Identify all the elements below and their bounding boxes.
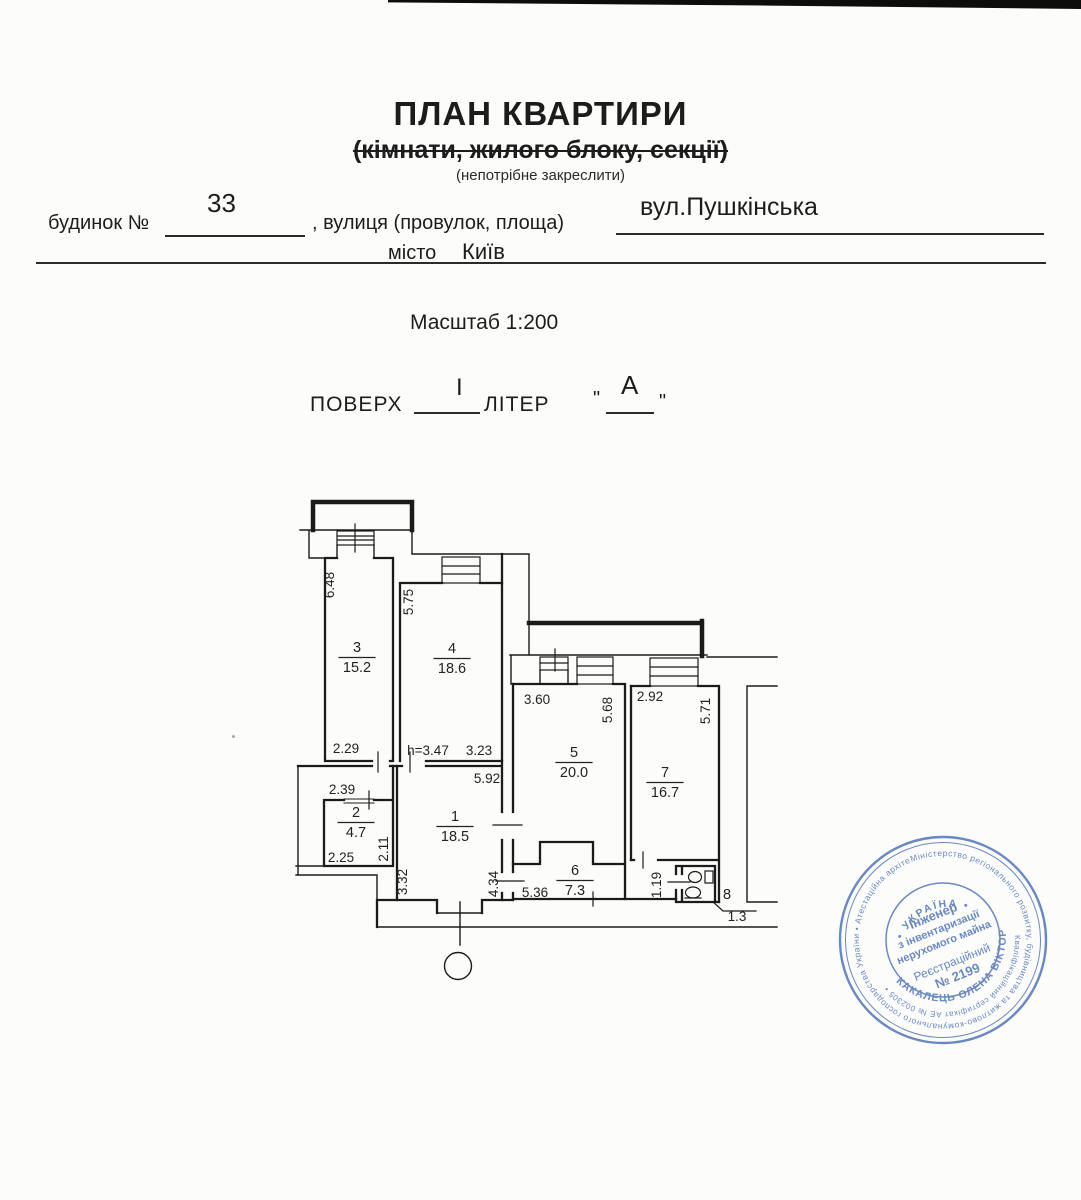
- floor-plan-drawing: 118.524.7315.2418.6520.067.3716.786.485.…: [280, 470, 800, 990]
- house-number-underline: [165, 235, 305, 237]
- dimension-label: 3.32: [395, 869, 410, 895]
- letter-value: А: [621, 370, 638, 401]
- letter-label: ЛІТЕР: [484, 393, 549, 417]
- room-number-label: 7: [661, 765, 669, 781]
- street-value: вул.Пушкінська: [640, 193, 818, 222]
- dimension-label: 2.92: [637, 689, 663, 704]
- dimension-label: 5.92: [474, 771, 500, 786]
- subtitle-note: (непотрібне закреслити): [0, 167, 1081, 184]
- tick-marks: [355, 524, 690, 906]
- inspector-stamp: Міністерство регіонального розвитку, буд…: [818, 815, 1068, 1065]
- room-area-label: 18.5: [441, 829, 469, 845]
- street-label: , вулиця (провулок, площа): [312, 212, 564, 235]
- dimension-label: 1.3: [728, 909, 747, 924]
- dimension-label: 3.23: [466, 743, 492, 758]
- dimension-label: 3.60: [524, 692, 550, 707]
- page-title: ПЛАН КВАРТИРИ: [0, 95, 1081, 133]
- letter-quote-open: ": [593, 388, 600, 411]
- wc-fixtures: [685, 871, 713, 898]
- room-area-label: 16.7: [651, 785, 679, 801]
- dimension-label: h=3.47: [407, 743, 449, 758]
- room-number-label: 8: [723, 887, 731, 903]
- room-number-label: 6: [571, 863, 579, 879]
- room-number-label: 2: [352, 805, 360, 821]
- dimension-label: 1.19: [649, 872, 664, 898]
- page-subtitle-struck: (кімнати, жилого блоку, секції): [0, 136, 1081, 165]
- city-underline: [36, 262, 1046, 264]
- room-area-label: 7.3: [565, 883, 585, 899]
- room-walls: [298, 554, 719, 927]
- dimension-label: 2.29: [333, 741, 359, 756]
- house-number-value: 33: [207, 188, 236, 219]
- dimension-label: 5.68: [600, 697, 615, 723]
- scale-label: Масштаб 1:200: [410, 311, 558, 335]
- dimension-label: 2.11: [376, 836, 391, 861]
- house-number-label: будинок №: [48, 212, 149, 235]
- floor-value: I: [456, 374, 463, 402]
- street-underline: [616, 233, 1044, 235]
- balcony-walls: [313, 502, 702, 656]
- room-area-label: 20.0: [560, 765, 588, 781]
- entrance-circle: [445, 953, 472, 980]
- room-number-label: 4: [448, 641, 456, 657]
- room-number-label: 5: [570, 745, 578, 761]
- room-area-label: 18.6: [438, 661, 466, 677]
- room-area-label: 15.2: [343, 660, 371, 676]
- dimension-label: 4.34: [486, 870, 501, 897]
- room-number-label: 3: [353, 640, 361, 656]
- floor-label: ПОВЕРХ: [310, 393, 403, 417]
- dimension-label: 2.25: [328, 850, 354, 865]
- scan-speck: [232, 735, 235, 738]
- room-area-label: 4.7: [346, 825, 366, 841]
- room-number-label: 1: [451, 809, 459, 825]
- letter-quote-close: ": [659, 391, 666, 414]
- letter-underline: [606, 412, 654, 414]
- dimension-label: 6.48: [322, 572, 337, 598]
- floor-underline: [414, 412, 480, 414]
- scanned-floor-plan-document: ПЛАН КВАРТИРИ (кімнати, жилого блоку, се…: [0, 0, 1081, 1200]
- dimension-label: 2.39: [329, 782, 355, 797]
- dimension-label: 5.75: [401, 589, 416, 615]
- dimension-label: 5.71: [698, 698, 713, 724]
- scan-edge-artifact: [388, 0, 1081, 9]
- dimension-label: 5.36: [522, 885, 548, 900]
